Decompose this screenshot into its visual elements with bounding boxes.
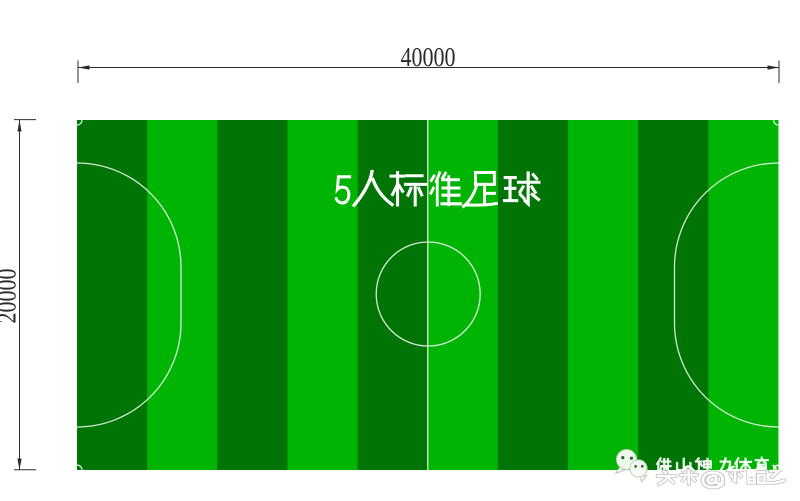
svg-text:20000: 20000 — [0, 269, 22, 324]
svg-text:40000: 40000 — [401, 42, 456, 72]
